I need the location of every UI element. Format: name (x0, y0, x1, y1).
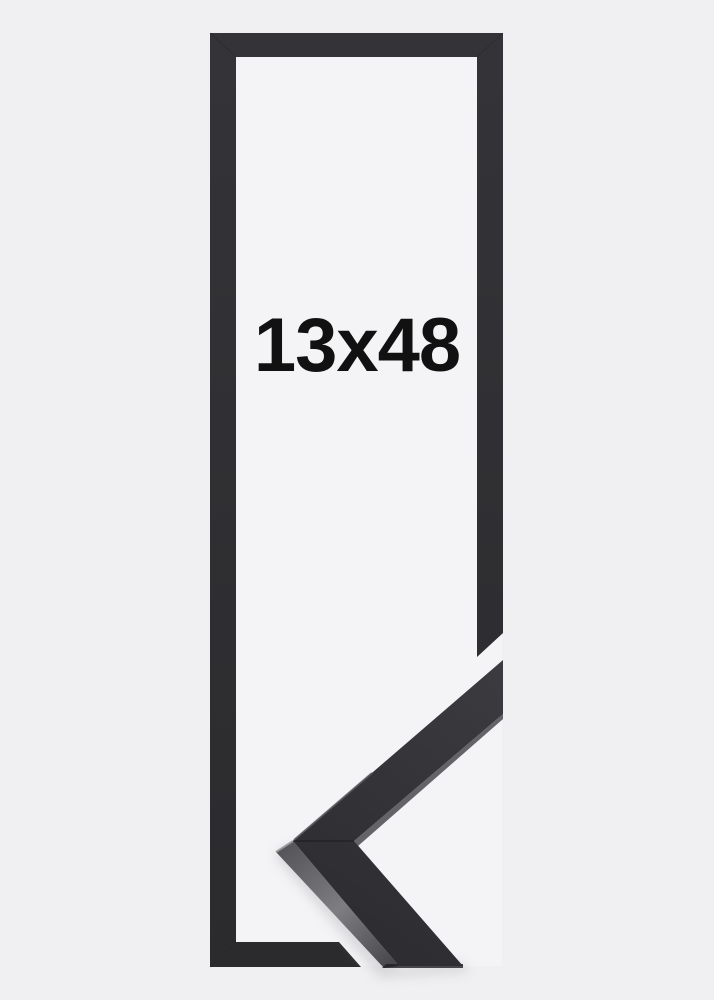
product-image: 13x48 (0, 0, 714, 1000)
size-label: 13x48 (254, 303, 460, 388)
frame-product-graphic: 13x48 (0, 0, 714, 1000)
